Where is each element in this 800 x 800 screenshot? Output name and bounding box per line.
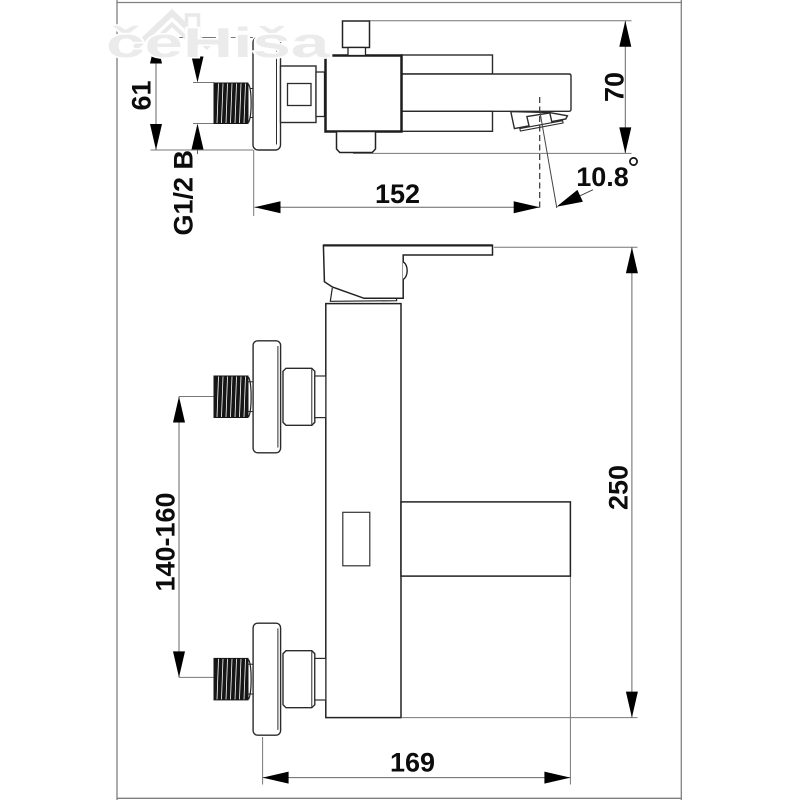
svg-text:G1/2 B: G1/2 B [169,150,199,236]
svg-text:250: 250 [604,465,634,510]
svg-text:61: 61 [127,80,157,110]
svg-text:140-160: 140-160 [151,492,181,591]
svg-text:čeHiša: čeHiša [106,20,331,67]
svg-text:152: 152 [375,179,420,209]
svg-text:70: 70 [600,72,630,102]
svg-text:10.8: 10.8 [576,162,629,192]
svg-text:169: 169 [390,748,435,778]
